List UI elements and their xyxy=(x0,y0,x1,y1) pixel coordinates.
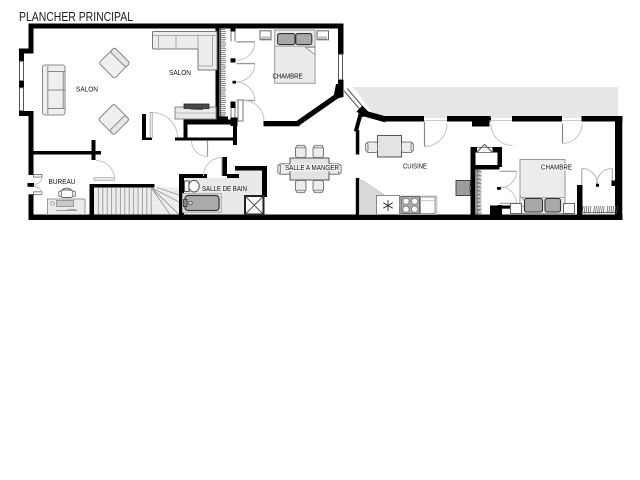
svg-text:SALLE DE BAIN: SALLE DE BAIN xyxy=(202,186,247,193)
svg-text:CHAMBRE: CHAMBRE xyxy=(273,74,303,81)
svg-text:SALLE A MANGER: SALLE A MANGER xyxy=(285,165,339,172)
svg-text:BUREAU: BUREAU xyxy=(49,179,76,186)
svg-text:CUISINE: CUISINE xyxy=(403,164,427,171)
svg-text:SALON: SALON xyxy=(76,87,98,94)
svg-text:SALON: SALON xyxy=(169,70,191,77)
svg-text:CHAMBRE: CHAMBRE xyxy=(541,165,572,172)
svg-text:PLANCHER PRINCIPAL: PLANCHER PRINCIPAL xyxy=(19,10,133,24)
